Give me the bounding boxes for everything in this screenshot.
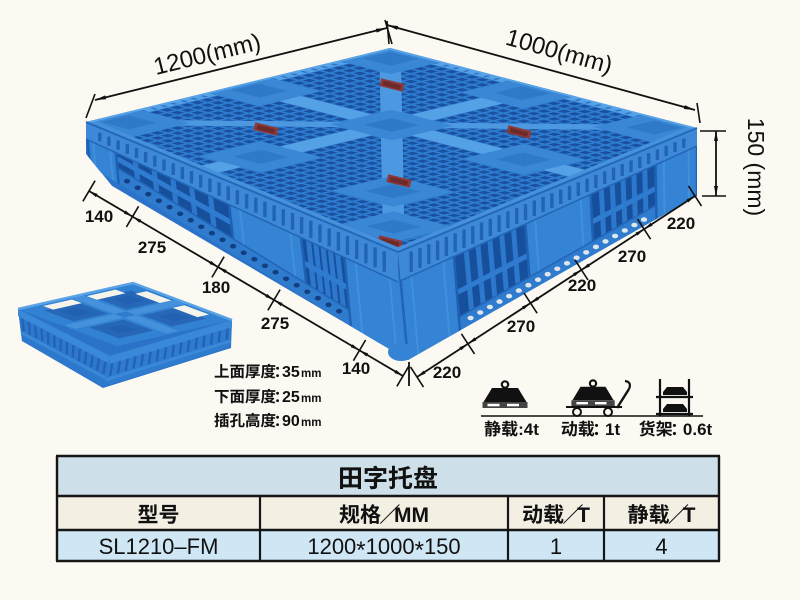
svg-text:1: 1: [550, 534, 562, 559]
svg-text:SL1210–FM: SL1210–FM: [99, 534, 219, 559]
svg-text:T: T: [683, 504, 696, 527]
svg-text:275: 275: [261, 314, 289, 333]
svg-text:1t: 1t: [605, 420, 620, 439]
svg-text:220: 220: [667, 214, 695, 233]
svg-text:mm: mm: [301, 368, 321, 380]
svg-text:4: 4: [655, 534, 667, 559]
svg-text:180: 180: [202, 278, 230, 297]
svg-text:mm: mm: [301, 417, 321, 429]
svg-text:220: 220: [568, 276, 596, 295]
svg-text::4t: :4t: [518, 420, 539, 439]
svg-text:90: 90: [282, 413, 300, 430]
svg-text:140: 140: [342, 359, 370, 378]
svg-text:mm: mm: [301, 393, 321, 405]
svg-text:270: 270: [507, 317, 535, 336]
svg-text:35: 35: [282, 364, 300, 381]
svg-text:T: T: [577, 504, 590, 527]
svg-text:270: 270: [618, 247, 646, 266]
svg-text:140: 140: [85, 207, 113, 226]
svg-text:MM: MM: [394, 504, 429, 527]
svg-text:25: 25: [282, 389, 300, 406]
svg-text:275: 275: [138, 238, 166, 257]
svg-text:220: 220: [433, 363, 461, 382]
svg-text:0.6t: 0.6t: [683, 420, 713, 439]
svg-text:150 (mm): 150 (mm): [743, 118, 769, 216]
